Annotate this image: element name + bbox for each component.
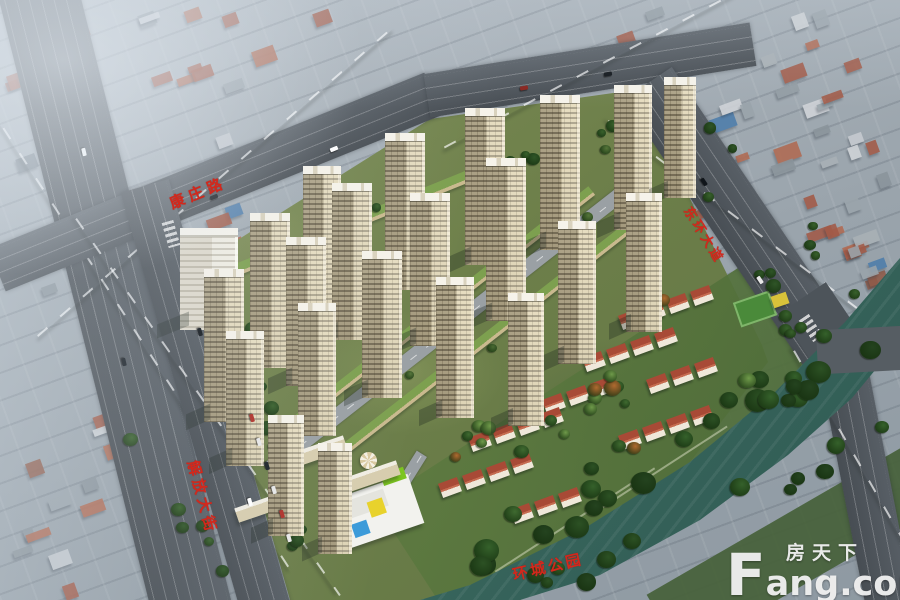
- tree: [827, 437, 845, 454]
- tree: [738, 373, 755, 389]
- residential-tower: [558, 228, 596, 364]
- fang-watermark: 房天下 Fang.com: [726, 538, 900, 600]
- tree: [781, 394, 796, 407]
- residential-tower: [664, 84, 696, 198]
- tree: [703, 413, 721, 429]
- tree: [623, 533, 641, 549]
- tree: [811, 251, 820, 260]
- tree: [604, 380, 621, 395]
- tree: [704, 122, 717, 133]
- tree: [816, 329, 832, 343]
- tree: [620, 399, 630, 408]
- tree: [541, 577, 553, 588]
- tree: [765, 268, 776, 278]
- tree: [627, 442, 640, 454]
- tree: [612, 440, 626, 453]
- tree: [470, 556, 492, 576]
- aerial-rendering-scene: 康庄路 东环大道 解放大街 环城公园 房天下 Fang.com: [0, 0, 900, 600]
- tree: [816, 464, 834, 480]
- tree: [204, 537, 214, 546]
- tree: [588, 383, 602, 396]
- kindergarten-blue-block: [351, 520, 371, 538]
- tree: [487, 344, 496, 353]
- residential-tower: [436, 284, 474, 418]
- tree: [604, 370, 617, 382]
- tree: [216, 565, 229, 576]
- watermark-en: Fang.com: [726, 546, 900, 600]
- residential-tower: [318, 450, 352, 554]
- tree: [703, 192, 714, 202]
- tree: [264, 401, 279, 415]
- residential-tower: [226, 338, 264, 466]
- residential-tower: [268, 422, 304, 536]
- residential-tower: [508, 300, 544, 426]
- tree: [875, 421, 889, 434]
- tree: [372, 203, 381, 211]
- tree: [584, 462, 599, 475]
- tree: [462, 431, 472, 440]
- residential-tower: [626, 200, 662, 332]
- tree: [784, 484, 797, 496]
- residential-tower: [362, 258, 402, 398]
- tree: [584, 403, 597, 415]
- tree: [795, 322, 807, 333]
- tree: [123, 433, 137, 446]
- tree: [860, 341, 880, 359]
- tree: [758, 390, 779, 409]
- tree: [849, 289, 860, 299]
- tree: [405, 371, 414, 379]
- tree: [786, 379, 802, 394]
- tree: [785, 329, 796, 339]
- tree: [476, 438, 487, 448]
- tree: [504, 506, 522, 522]
- tree: [533, 525, 554, 544]
- tree: [577, 573, 596, 590]
- tree: [565, 516, 589, 538]
- tree: [766, 279, 781, 292]
- tree: [171, 503, 185, 516]
- tree: [730, 478, 750, 496]
- tree: [597, 551, 615, 568]
- tree: [514, 445, 529, 458]
